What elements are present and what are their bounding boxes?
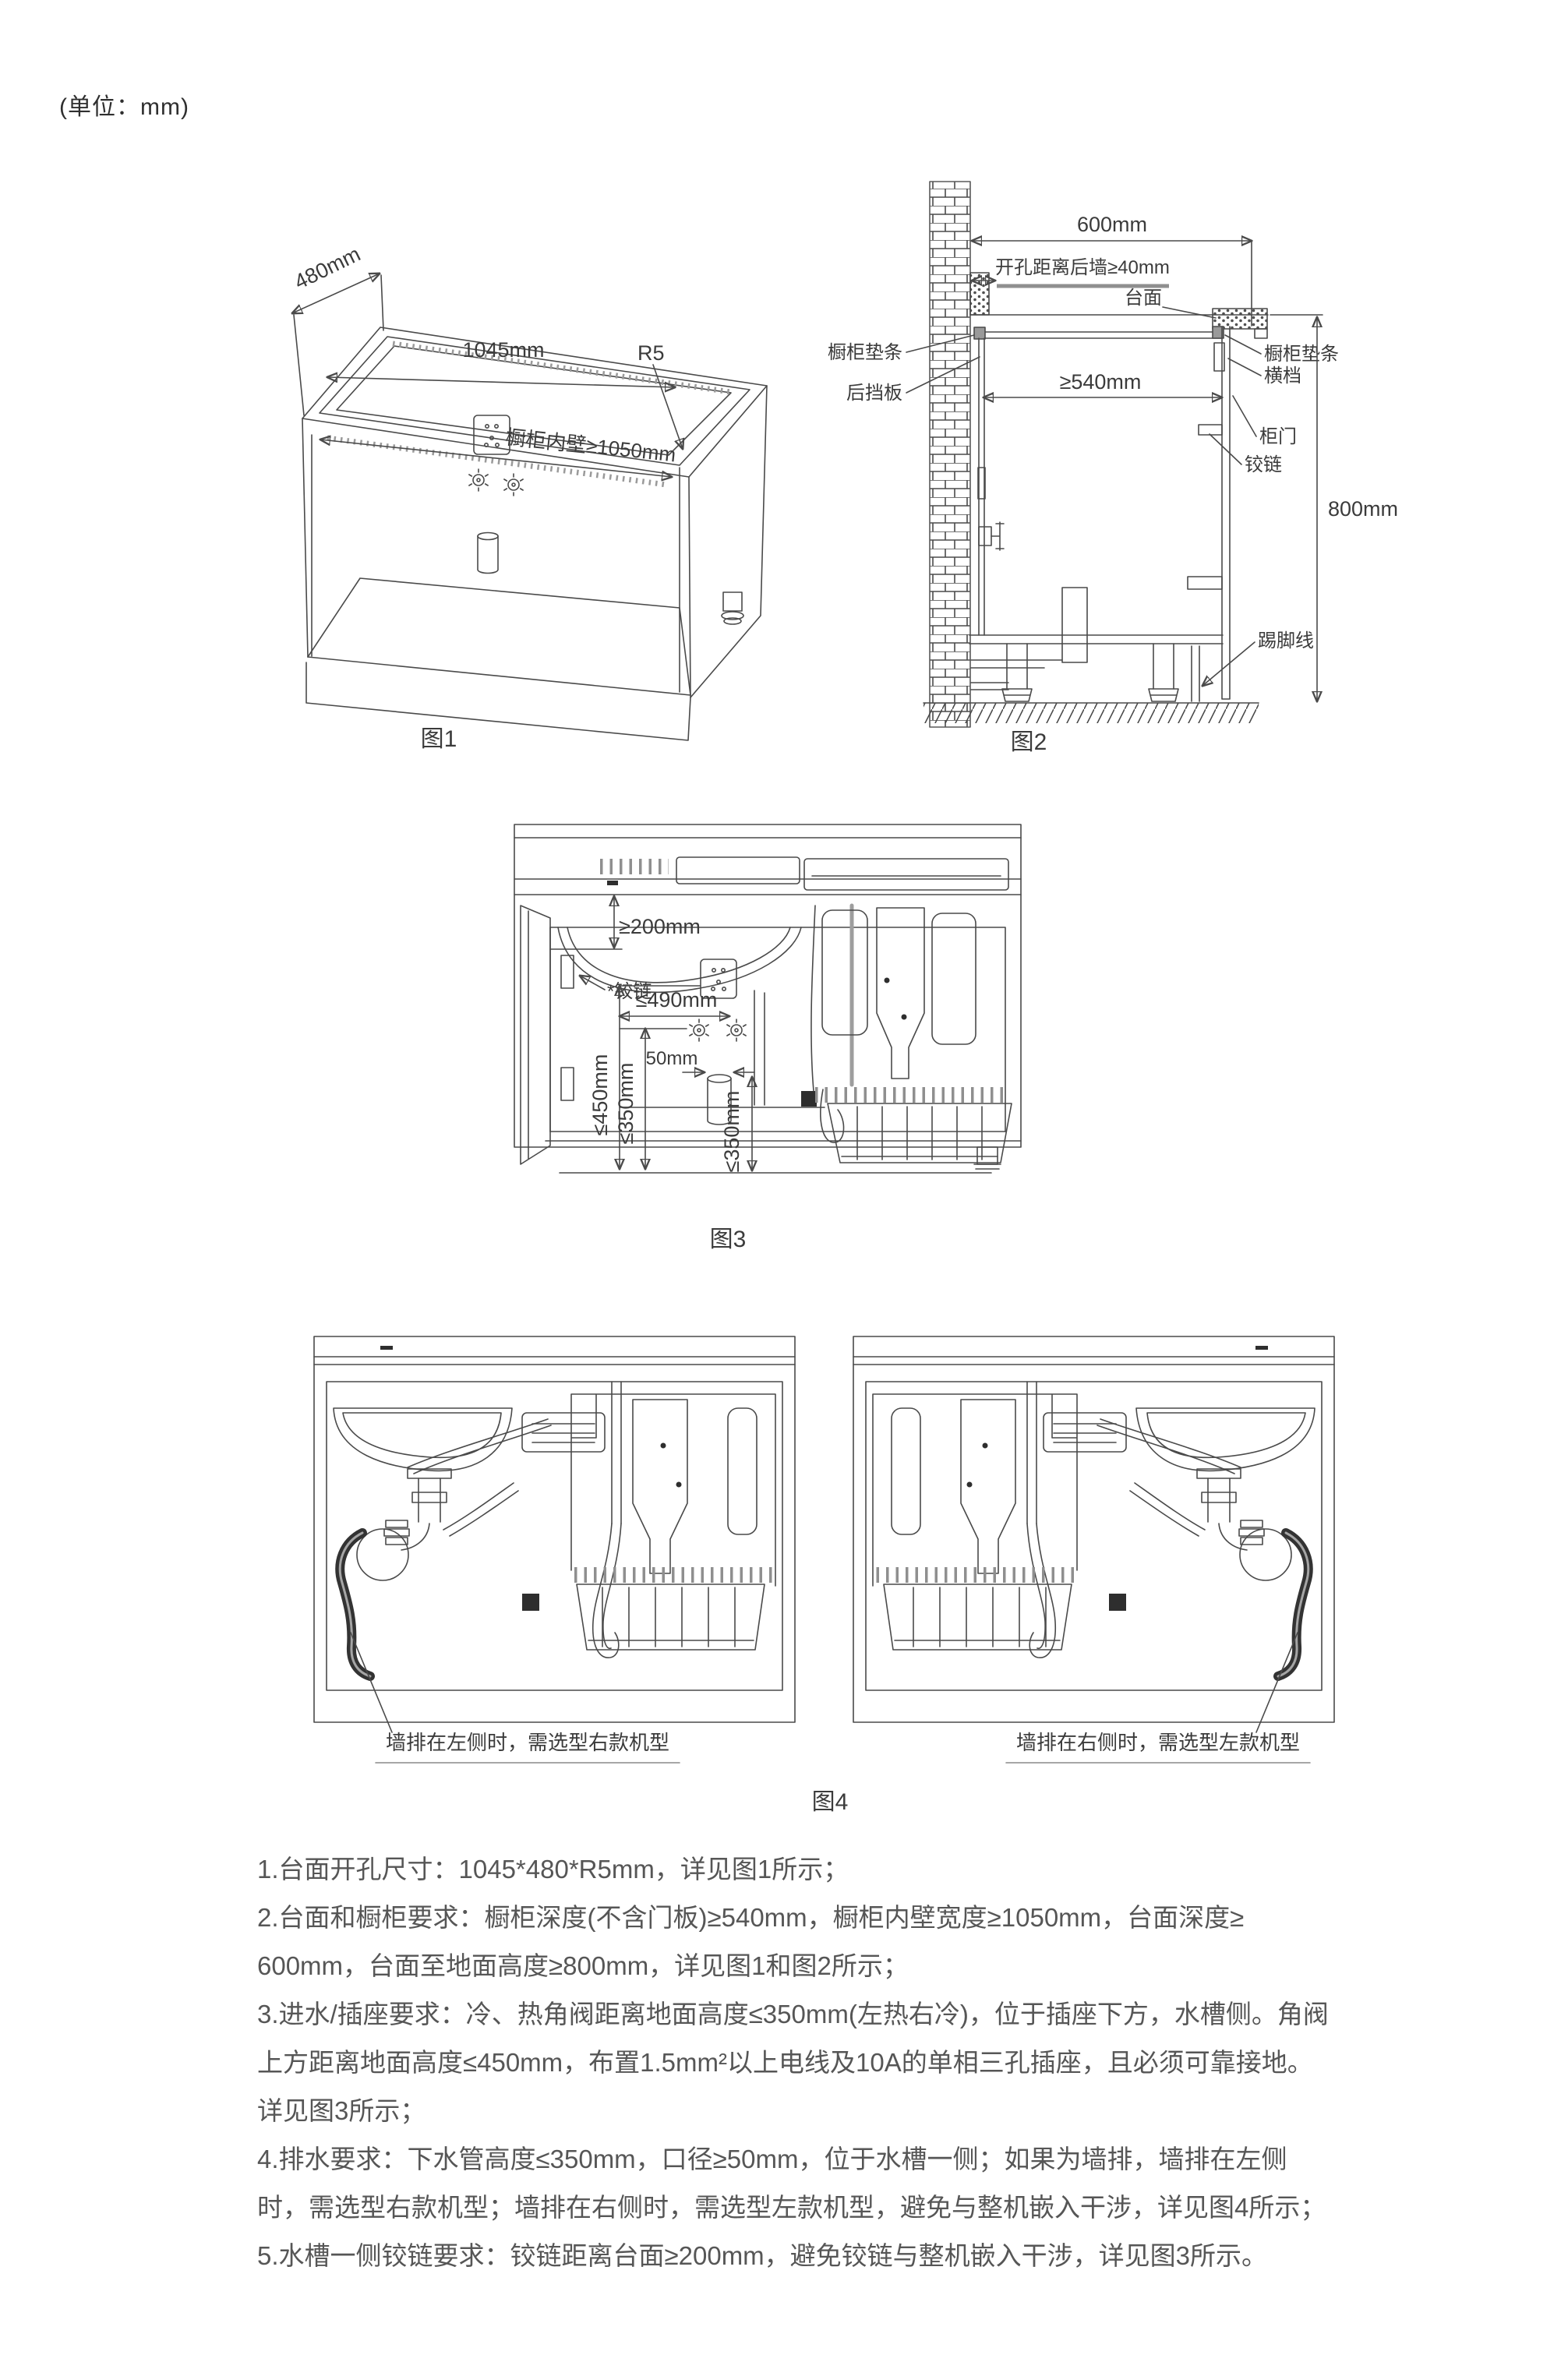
figure3-caption: 图3 bbox=[710, 1227, 747, 1252]
figure4-right-panel bbox=[853, 1336, 1334, 1732]
dim-top-width-label: 600mm bbox=[1077, 213, 1147, 236]
hinge-label: 铰链 bbox=[1245, 454, 1282, 475]
angle-valve-icon bbox=[727, 1019, 746, 1041]
pad-right-label: 橱柜垫条 bbox=[1264, 344, 1339, 365]
dim-inner-wall-label: 橱柜内壁≥1050mm bbox=[504, 425, 676, 467]
dim-height-label: 800mm bbox=[1328, 497, 1398, 521]
note-line-1: 1.台面开孔尺寸：1045*480*R5mm，详见图1所示； bbox=[257, 1845, 1411, 1894]
drain-valve bbox=[801, 1091, 817, 1107]
wall-section bbox=[930, 182, 970, 727]
door-label: 柜门 bbox=[1259, 426, 1297, 447]
drain-pipe bbox=[708, 1075, 731, 1082]
note-line-8: 时，需选型右款机型；墙排在右侧时，需选型左款机型，避免与整机嵌入干涉，详见图4所… bbox=[257, 2184, 1411, 2232]
note-line-7: 4.排水要求：下水管高度≤350mm，口径≥50mm，位于水槽一侧；如果为墙排，… bbox=[257, 2135, 1411, 2184]
back-board-label: 后挡板 bbox=[846, 383, 902, 404]
cross-rail-label: 横档 bbox=[1264, 365, 1301, 387]
figure4-right-caption: 墙排在右侧时，需选型左款机型 bbox=[1016, 1731, 1300, 1754]
angle-valve-icon bbox=[504, 474, 523, 496]
angle-valve-icon bbox=[690, 1019, 708, 1041]
figure1-drawing: 480mm 1045mm R5 橱柜内壁≥1050mm 图1 bbox=[291, 242, 767, 752]
figure1-caption: 图1 bbox=[421, 726, 457, 752]
dim-radius-label: R5 bbox=[637, 341, 665, 365]
dim-valve-width-label: ≤490mm bbox=[636, 988, 718, 1012]
figure4-drawing: 墙排在左侧时，需选型右款机型 墙排在右侧时，需选型左款机型 图4 bbox=[314, 1336, 1334, 1815]
note-line-4: 3.进水/插座要求：冷、热角阀距离地面高度≤350mm(左热右冷)，位于插座下方… bbox=[257, 1990, 1411, 2039]
figure4-caption: 图4 bbox=[812, 1789, 849, 1815]
door-hinge bbox=[561, 1068, 574, 1100]
dim-valve-height-label: ≤350mm bbox=[614, 1063, 637, 1145]
pad-left-label: 橱柜垫条 bbox=[828, 342, 902, 363]
dim-valve-top-height-label: ≤450mm bbox=[588, 1054, 612, 1136]
dim-inner-depth-label: ≥540mm bbox=[1060, 370, 1142, 394]
figure2-caption: 图2 bbox=[1011, 729, 1047, 755]
figure2-drawing: 600mm 开孔距离后墙≥40mm 台面 橱柜垫条 后挡板 ≥540mm 橱柜垫… bbox=[828, 182, 1398, 755]
note-line-3: 600mm，台面至地面高度≥800mm，详见图1和图2所示； bbox=[257, 1942, 1411, 1990]
note-line-5: 上方距离地面高度≤450mm，布置1.5mm²以上电线及10A的单相三孔插座，且… bbox=[257, 2039, 1411, 2087]
countertop-label: 台面 bbox=[1125, 288, 1162, 309]
note-line-2: 2.台面和橱柜要求：橱柜深度(不含门板)≥540mm，橱柜内壁宽度≥1050mm… bbox=[257, 1894, 1411, 1942]
dim-pipe-width-label: 50mm bbox=[646, 1048, 698, 1069]
hole-to-wall-label: 开孔距离后墙≥40mm bbox=[995, 257, 1170, 278]
installation-notes: 1.台面开孔尺寸：1045*480*R5mm，详见图1所示； 2.台面和橱柜要求… bbox=[257, 1845, 1411, 2280]
angle-valve-icon bbox=[469, 469, 488, 491]
dim-hinge-gap-label: ≥200mm bbox=[619, 915, 701, 938]
note-line-9: 5.水槽一侧铰链要求：铰链距离台面≥200mm，避免铰链与整机嵌入干涉，详见图3… bbox=[257, 2232, 1411, 2280]
floor-hatch bbox=[923, 703, 1259, 723]
figure4-left-panel bbox=[314, 1336, 795, 1732]
note-line-6: 详见图3所示； bbox=[257, 2087, 1411, 2135]
kick-line-label: 踢脚线 bbox=[1258, 630, 1314, 651]
installation-spec-page: (单位：mm) bbox=[0, 0, 1568, 2355]
dim-drain-height-label: ≤350mm bbox=[720, 1091, 743, 1173]
dim-width-label: 1045mm bbox=[462, 338, 544, 362]
figure3-drawing: ≥200mm *铰链 ≤450mm ≤490mm ≤350mm 50mm ≤35… bbox=[514, 824, 1021, 1252]
figure4-left-caption: 墙排在左侧时，需选型右款机型 bbox=[386, 1731, 669, 1754]
drain-pipe-stub bbox=[478, 533, 498, 540]
